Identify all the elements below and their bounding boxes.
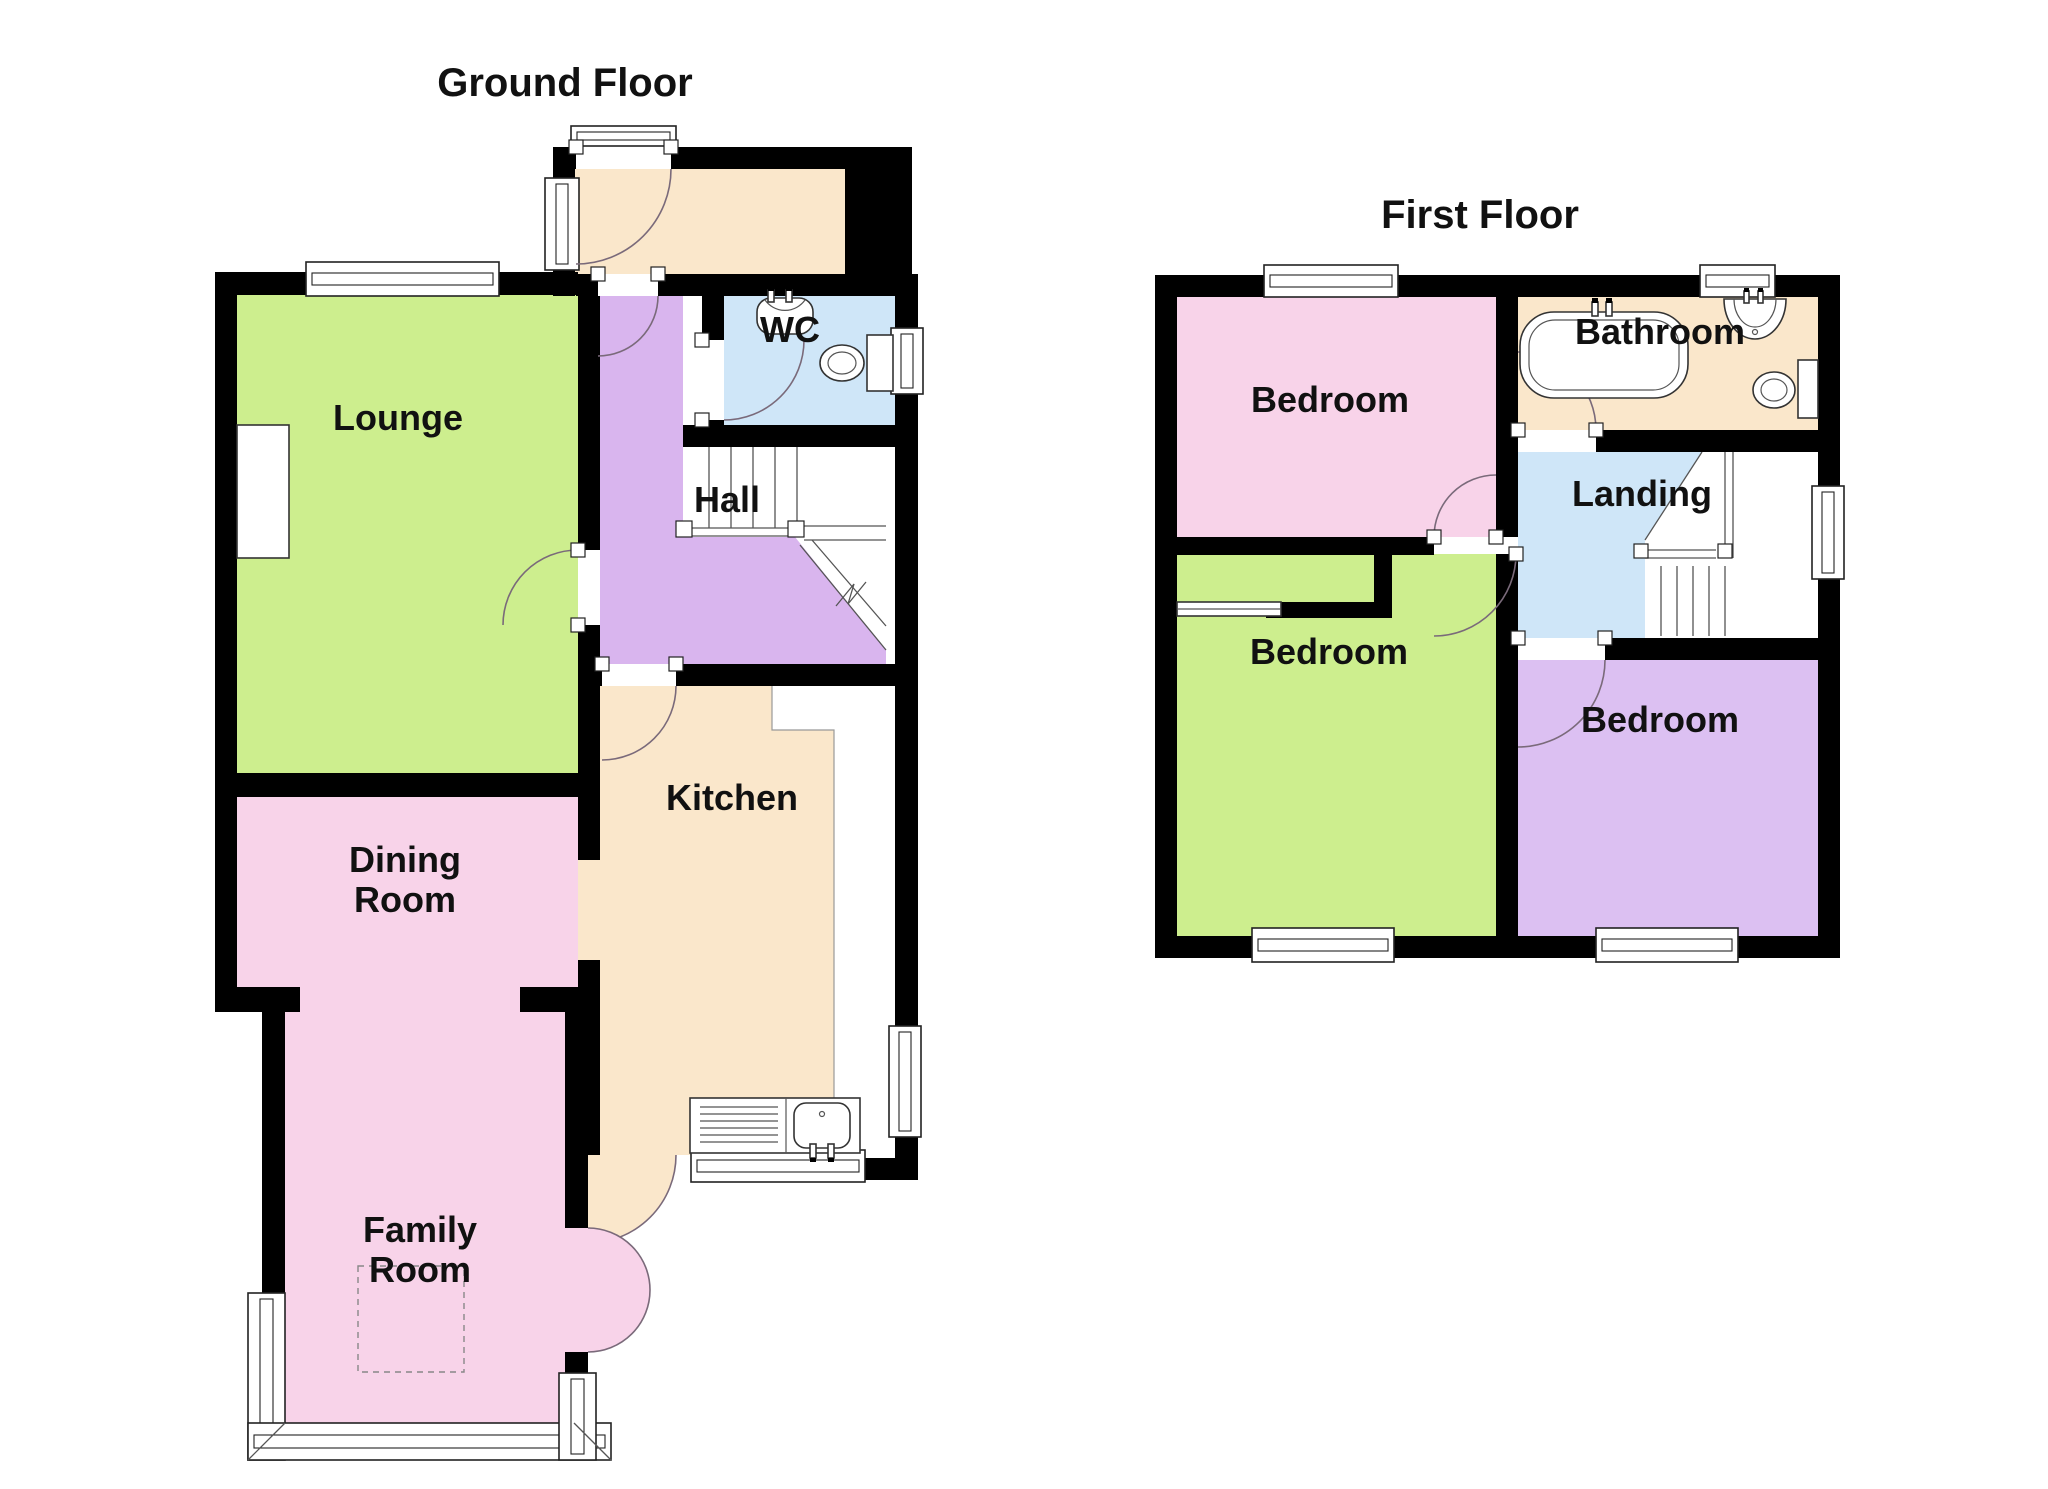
bedroom-front-label: Bedroom [1251,379,1409,420]
bedroom-back-label: Bedroom [1581,699,1739,740]
hall-corridor [600,296,683,664]
first-floor-title: First Floor [1381,193,1579,237]
floorplan-page: Ground Floor Lounge Hall WC Kitchen Dini… [0,0,2048,1489]
fireplace-icon [237,425,289,558]
wardrobe-slider-icon [1177,602,1281,616]
ground-floor-title: Ground Floor [437,61,693,105]
hall-label: Hall [694,479,760,520]
lounge-label: Lounge [333,397,463,438]
dining-family-opening [300,987,520,1012]
family-door-opening [565,1228,588,1352]
ground-floor-plan: Ground Floor Lounge Hall WC Kitchen Dini… [215,61,923,1460]
bedroom-middle-label: Bedroom [1250,631,1408,672]
dining-room-label-2: Room [354,879,456,920]
floorplan-canvas: Ground Floor Lounge Hall WC Kitchen Dini… [0,0,2048,1489]
first-floor-plan: First Floor Bedroom Bedroom Bedroom Bath… [1155,193,1844,962]
kitchen-label: Kitchen [666,777,798,818]
family-room-label-2: Room [369,1249,471,1290]
porch-room [574,169,845,274]
wc-label: WC [760,309,820,350]
bathroom-label: Bathroom [1575,311,1745,352]
dining-room-label-1: Dining [349,839,461,880]
kitchen-dining-opening [578,860,600,960]
landing-label: Landing [1572,473,1712,514]
kitchen-room [600,686,834,1155]
kitchen-sink-icon [690,1098,860,1162]
family-room-label-1: Family [363,1209,477,1250]
